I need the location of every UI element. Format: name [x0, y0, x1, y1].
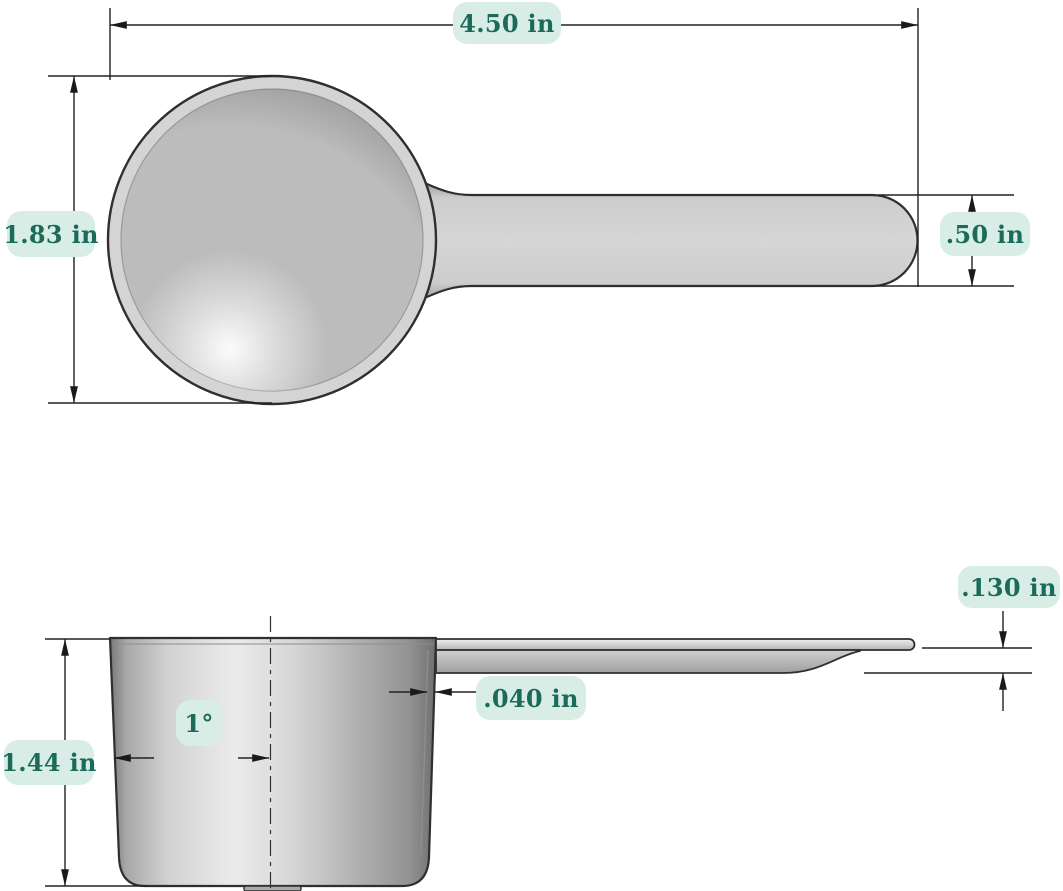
handle-side-root: [436, 650, 860, 673]
cup-body-section: [110, 638, 436, 886]
scoop-side-view: [110, 616, 915, 891]
handle-side-top-plate: [436, 639, 915, 650]
handle-top-view: [418, 180, 918, 301]
scoop-drawing: [0, 0, 1063, 891]
bowl-interior-shading: [121, 89, 423, 391]
cup-bottom-foot: [244, 886, 301, 891]
dim-label-cup-height: 1.44 in: [4, 740, 94, 785]
dim-label-bowl-diameter: 1.83 in: [7, 211, 95, 257]
dim-label-handle-width: .50 in: [940, 212, 1030, 256]
dim-label-overall-length: 4.50 in: [453, 2, 561, 44]
dim-label-draft-angle: 1°: [176, 700, 222, 746]
drawing-canvas: 4.50 in 1.83 in .50 in .130 in .040 in 1…: [0, 0, 1063, 891]
dim-label-handle-thickness: .130 in: [958, 566, 1060, 608]
dim-label-wall-thickness: .040 in: [476, 676, 586, 720]
scoop-top-view: [108, 76, 918, 404]
